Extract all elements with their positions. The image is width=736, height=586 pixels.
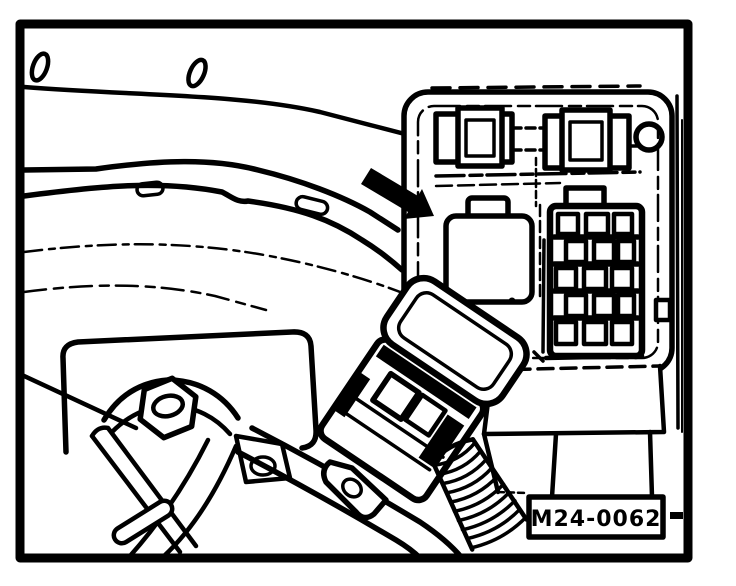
latch-dot [509, 298, 516, 305]
reference-label-text: M24-0062 [531, 507, 662, 532]
body-contour-line [24, 51, 428, 140]
reference-label: M24-0062 [529, 497, 683, 537]
reference-label-dash [670, 512, 683, 519]
shift-linkage-rods [92, 428, 236, 556]
service-manual-illustration: M24-0062 [0, 0, 736, 586]
panel-edge-notch [656, 300, 670, 320]
multi-pin-connector-block [543, 188, 642, 358]
engine-mount-bracket [22, 332, 316, 482]
line-art-canvas: M24-0062 [0, 0, 736, 586]
mounting-slot-left [29, 51, 52, 82]
flange-slot-detail-left [136, 182, 163, 197]
mounting-slot-right [185, 57, 209, 88]
panel-shadow-line [677, 96, 678, 428]
